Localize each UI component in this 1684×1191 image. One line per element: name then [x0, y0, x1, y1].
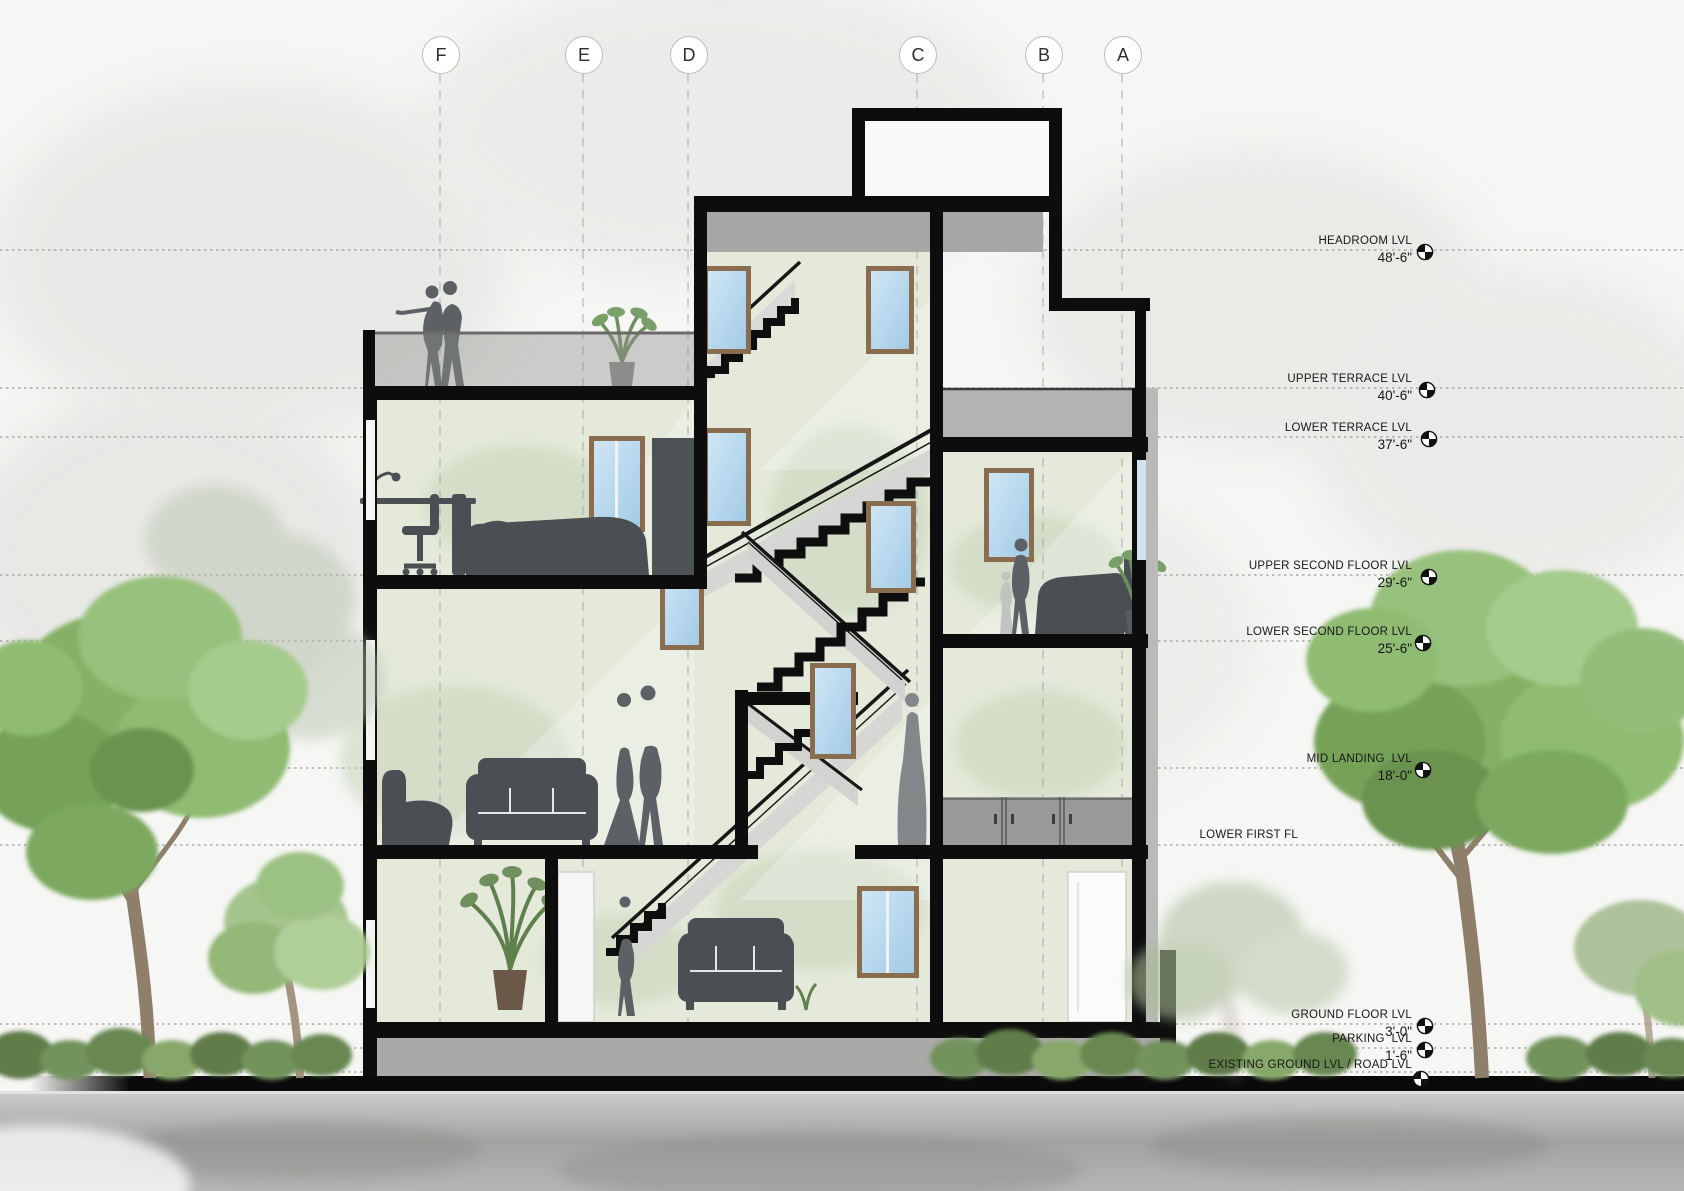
grid-bubble-label: C [912, 45, 925, 65]
level-elevation: 18'-0" [1082, 768, 1412, 784]
stair-landing-wall [735, 690, 748, 845]
level-label-existing-ground: EXISTING GROUND LVL / ROAD LVL [1082, 1059, 1412, 1072]
level-label-lower-first: LOWER FIRST FL [968, 829, 1298, 842]
level-target-icon [1414, 634, 1432, 652]
level-name: LOWER TERRACE LVL [1082, 422, 1412, 435]
grid-bubble-label: A [1117, 45, 1129, 65]
sofa-silhouette-ground [678, 918, 794, 1010]
terrace-railing [375, 333, 694, 386]
grid-bubble-b: B [1025, 36, 1063, 74]
grid-bubble-a: A [1104, 36, 1142, 74]
stairwell-right-wall [930, 196, 943, 1022]
grid-bubble-label: D [683, 45, 696, 65]
level-name: EXISTING GROUND LVL / ROAD LVL [1082, 1059, 1412, 1072]
ground-floor-slab [363, 1022, 1160, 1038]
level-name: HEADROOM LVL [1082, 235, 1412, 248]
level-label-upper-second: UPPER SECOND FLOOR LVL 29'-6" [1082, 560, 1412, 591]
level-elevation: 29'-6" [1082, 575, 1412, 591]
stairwell-left-wall [694, 196, 707, 589]
roof-fascia-band [707, 212, 1043, 252]
window-stair-4 [810, 663, 856, 759]
window-stair-1 [703, 428, 751, 526]
ground [0, 1076, 1684, 1191]
building-section-svg [0, 0, 1684, 1191]
level-name: PARKING LVL [1082, 1033, 1412, 1046]
terrace-slab [363, 386, 707, 400]
grid-bubble-e: E [565, 36, 603, 74]
right-mid-floor-slab [855, 845, 1148, 859]
level-target-icon [1420, 430, 1438, 448]
ground-interior-wall [545, 859, 558, 1022]
window-hall-left [703, 266, 751, 354]
grid-bubble-label: F [436, 45, 447, 65]
level-target-icon [1414, 761, 1432, 779]
sofa-silhouette-living [466, 758, 598, 846]
level-target-icon [1416, 243, 1434, 261]
level-target-icon [1416, 1017, 1434, 1035]
terrace-parapet-left [363, 330, 375, 388]
level-name: LOWER FIRST FL [968, 829, 1298, 842]
level-elevation: 48'-6" [1082, 250, 1412, 266]
level-label-mid-landing: MID LANDING LVL 18'-0" [1082, 753, 1412, 784]
left-bedroom-floor-slab [363, 575, 707, 589]
headroom-roof-slab [694, 196, 1062, 212]
section-drawing-canvas: F E D C B A HEADROOM LVL 48'-6" UPPER TE… [0, 0, 1684, 1191]
level-elevation: 25'-6" [1082, 641, 1412, 657]
level-name: UPPER SECOND FLOOR LVL [1082, 560, 1412, 573]
level-label-upper-terrace: UPPER TERRACE LVL 40'-6" [1082, 373, 1412, 404]
living-floor-slab [363, 845, 758, 859]
level-elevation: 37'-6" [1082, 437, 1412, 453]
window-hall-right [866, 266, 914, 354]
level-name: LOWER SECOND FLOOR LVL [1082, 626, 1412, 639]
level-target-icon [1420, 568, 1438, 586]
grid-bubble-f: F [422, 36, 460, 74]
level-elevation: 40'-6" [1082, 388, 1412, 404]
level-target-icon [1412, 1070, 1430, 1088]
level-label-lower-second: LOWER SECOND FLOOR LVL 25'-6" [1082, 626, 1412, 657]
level-target-icon [1416, 1041, 1434, 1059]
level-label-headroom: HEADROOM LVL 48'-6" [1082, 235, 1412, 266]
level-target-icon [1418, 381, 1436, 399]
door-right-lower-room [1068, 872, 1126, 1022]
slit-window-right [1137, 460, 1146, 560]
window-stair-3 [866, 501, 916, 593]
grid-bubble-d: D [670, 36, 708, 74]
slit-window-1 [366, 420, 375, 520]
level-name: GROUND FLOOR LVL [1082, 1009, 1412, 1022]
level-name: UPPER TERRACE LVL [1082, 373, 1412, 386]
tree-left-large [0, 576, 308, 1078]
window-ground-floor [857, 886, 919, 978]
wardrobe-panel [652, 438, 694, 575]
grid-bubble-label: B [1038, 45, 1050, 65]
grid-bubble-c: C [899, 36, 937, 74]
level-name: MID LANDING LVL [1082, 753, 1412, 766]
upper-right-small-slab [1049, 298, 1150, 311]
door-ground-interior [558, 872, 594, 1022]
level-label-lower-terrace: LOWER TERRACE LVL 37'-6" [1082, 422, 1412, 453]
grid-bubble-label: E [578, 45, 590, 65]
